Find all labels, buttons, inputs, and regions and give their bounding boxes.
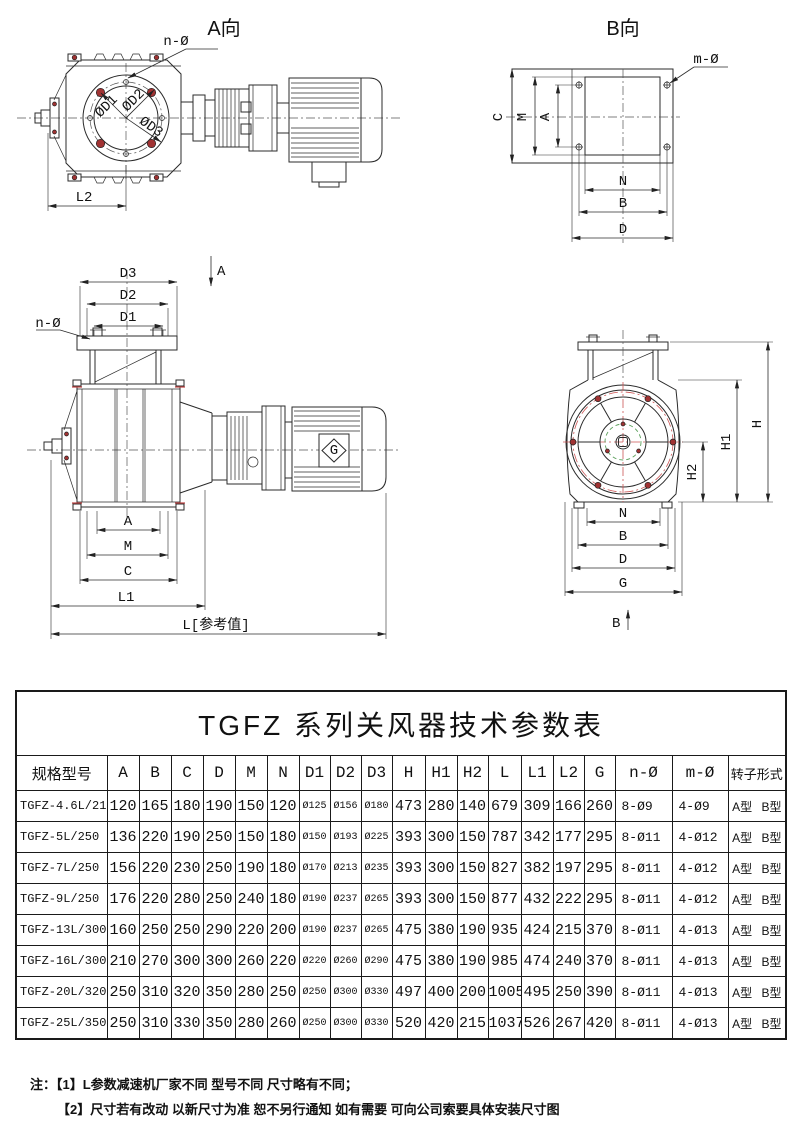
- spec-value-cell: 424: [521, 915, 553, 946]
- spec-value-cell: 150: [457, 853, 488, 884]
- spec-value-cell: 220: [235, 915, 267, 946]
- spec-value-cell: 495: [521, 977, 553, 1008]
- spec-value-cell: 4-Ø13: [672, 977, 728, 1008]
- dim-label-m: M: [515, 113, 531, 121]
- column-header: H1: [425, 756, 457, 791]
- spec-value-cell: 8-Ø11: [615, 977, 672, 1008]
- spec-model-cell: TGFZ-16L/300: [16, 946, 107, 977]
- table-row: TGFZ-7L/250156220230250190180Ø170Ø213Ø23…: [16, 853, 786, 884]
- spec-value-cell: 260: [584, 791, 615, 822]
- spec-value-cell: 382: [521, 853, 553, 884]
- spec-value-cell: 222: [553, 884, 584, 915]
- column-header: L2: [553, 756, 584, 791]
- spec-table: TGFZ 系列关风器技术参数表 规格型号ABCDMND1D2D3HH1H2LL1…: [15, 690, 787, 1040]
- dim-label-c: C: [491, 113, 507, 121]
- view-b-drawing: B向 m-Ø C M A N B D: [491, 17, 728, 243]
- table-header-row: 规格型号ABCDMND1D2D3HH1H2LL1L2Gn-Øm-Ø转子形式: [16, 756, 786, 791]
- spec-value-cell: 300: [425, 822, 457, 853]
- spec-value-cell: 250: [203, 853, 235, 884]
- spec-value-cell: 166: [553, 791, 584, 822]
- spec-value-cell: Ø237: [330, 884, 361, 915]
- motor: G: [292, 407, 386, 491]
- column-header: D2: [330, 756, 361, 791]
- spec-value-cell: 679: [488, 791, 521, 822]
- spec-value-cell: 8-Ø11: [615, 946, 672, 977]
- spec-value-cell: 140: [457, 791, 488, 822]
- view-b-title: B向: [606, 17, 639, 40]
- spec-value-cell: 160: [107, 915, 139, 946]
- spec-value-cell: 250: [107, 977, 139, 1008]
- spec-value-cell: 420: [584, 1008, 615, 1040]
- spec-model-cell: TGFZ-25L/350: [16, 1008, 107, 1040]
- spec-value-cell: 432: [521, 884, 553, 915]
- spec-value-cell: 200: [267, 915, 299, 946]
- spec-value-cell: 4-Ø12: [672, 822, 728, 853]
- spec-value-cell: Ø330: [361, 977, 392, 1008]
- drawing-view-a: ØD1 ØD2 ØD3: [10, 5, 460, 250]
- spec-value-cell: 150: [457, 884, 488, 915]
- flange-bolts: [90, 328, 166, 336]
- spec-value-cell: A型 B型: [728, 946, 786, 977]
- spec-value-cell: 4-Ø9: [672, 791, 728, 822]
- spec-value-cell: 260: [235, 946, 267, 977]
- notes-block: 注：【1】L参数减速机厂家不同 型号不同 尺寸略有不同； 【2】尺寸若有改动 以…: [30, 1072, 560, 1123]
- spec-value-cell: 4-Ø12: [672, 884, 728, 915]
- dim-label-n: N: [619, 506, 627, 522]
- note-prefix: 注：: [30, 1077, 56, 1092]
- column-header: G: [584, 756, 615, 791]
- spec-value-cell: 526: [521, 1008, 553, 1040]
- dim-label-n: N: [619, 174, 627, 190]
- spec-value-cell: 985: [488, 946, 521, 977]
- dim-label-l-ref: L[参考值]: [182, 616, 249, 634]
- spec-value-cell: Ø250: [299, 1008, 330, 1040]
- section-marker-b: B: [612, 616, 620, 632]
- spec-value-cell: Ø170: [299, 853, 330, 884]
- table-title: TGFZ 系列关风器技术参数表: [16, 691, 786, 756]
- spec-value-cell: 177: [553, 822, 584, 853]
- table-row: TGFZ-25L/350250310330350280260Ø250Ø300Ø3…: [16, 1008, 786, 1040]
- dim-label-h2: H2: [685, 464, 701, 481]
- table-row: TGFZ-13L/300160250250290220200Ø190Ø237Ø2…: [16, 915, 786, 946]
- spec-value-cell: 280: [235, 977, 267, 1008]
- spec-value-cell: 393: [392, 822, 425, 853]
- dim-label-b: B: [619, 529, 627, 545]
- spec-model-cell: TGFZ-4.6L/210: [16, 791, 107, 822]
- spec-value-cell: 787: [488, 822, 521, 853]
- spec-value-cell: 230: [171, 853, 203, 884]
- spec-value-cell: 935: [488, 915, 521, 946]
- spec-model-cell: TGFZ-13L/300: [16, 915, 107, 946]
- table-row: TGFZ-5L/250136220190250150180Ø150Ø193Ø22…: [16, 822, 786, 853]
- note-line-1: 注：【1】L参数减速机厂家不同 型号不同 尺寸略有不同；: [30, 1072, 560, 1097]
- spec-value-cell: 300: [171, 946, 203, 977]
- dim-label-h1: H1: [719, 434, 735, 451]
- spec-value-cell: 309: [521, 791, 553, 822]
- spec-value-cell: 8-Ø11: [615, 1008, 672, 1040]
- spec-value-cell: A型 B型: [728, 884, 786, 915]
- spec-value-cell: 4-Ø12: [672, 853, 728, 884]
- spec-value-cell: Ø150: [299, 822, 330, 853]
- spec-value-cell: 220: [139, 822, 171, 853]
- spec-value-cell: 827: [488, 853, 521, 884]
- spec-value-cell: 295: [584, 884, 615, 915]
- spec-value-cell: 4-Ø13: [672, 1008, 728, 1040]
- spec-value-cell: 250: [171, 915, 203, 946]
- view-a-drawing: ØD1 ØD2 ØD3: [17, 17, 402, 211]
- spec-value-cell: 240: [235, 884, 267, 915]
- spec-value-cell: 190: [235, 853, 267, 884]
- spec-value-cell: 250: [203, 822, 235, 853]
- spec-value-cell: 190: [457, 946, 488, 977]
- spec-value-cell: 260: [267, 1008, 299, 1040]
- spec-value-cell: 1005: [488, 977, 521, 1008]
- spec-value-cell: 176: [107, 884, 139, 915]
- dim-label-a: A: [538, 112, 554, 121]
- spec-value-cell: Ø300: [330, 1008, 361, 1040]
- dim-label-b: B: [619, 196, 627, 212]
- spec-value-cell: 250: [139, 915, 171, 946]
- spec-value-cell: 150: [457, 822, 488, 853]
- spec-value-cell: 400: [425, 977, 457, 1008]
- spec-value-cell: 473: [392, 791, 425, 822]
- spec-value-cell: 300: [203, 946, 235, 977]
- spec-value-cell: 280: [171, 884, 203, 915]
- dim-label-g: G: [619, 576, 627, 592]
- spec-value-cell: Ø300: [330, 977, 361, 1008]
- callout-m-phi: m-Ø: [693, 52, 718, 68]
- gear-reducer: [180, 402, 292, 493]
- spec-value-cell: 390: [584, 977, 615, 1008]
- note-line-2: 【2】尺寸若有改动 以新尺寸为准 恕不另行通知 如有需要 可向公司索要具体安装尺…: [30, 1097, 560, 1122]
- spec-value-cell: 280: [235, 1008, 267, 1040]
- spec-value-cell: 497: [392, 977, 425, 1008]
- spec-value-cell: 250: [203, 884, 235, 915]
- spec-value-cell: A型 B型: [728, 977, 786, 1008]
- spec-value-cell: 330: [171, 1008, 203, 1040]
- view-a-title: A向: [207, 17, 240, 40]
- drawing-view-front: A D3 D2 D1 n-Ø: [14, 250, 434, 655]
- spec-value-cell: 150: [235, 822, 267, 853]
- spec-value-cell: Ø225: [361, 822, 392, 853]
- spec-value-cell: 156: [107, 853, 139, 884]
- spec-value-cell: 300: [425, 884, 457, 915]
- spec-value-cell: 300: [425, 853, 457, 884]
- spec-value-cell: 250: [553, 977, 584, 1008]
- spec-value-cell: Ø265: [361, 884, 392, 915]
- spec-value-cell: 270: [139, 946, 171, 977]
- spec-value-cell: Ø125: [299, 791, 330, 822]
- spec-value-cell: 295: [584, 822, 615, 853]
- shaft-left: [44, 391, 77, 500]
- dim-label-l2: L2: [76, 190, 93, 206]
- spec-value-cell: 877: [488, 884, 521, 915]
- spec-value-cell: Ø237: [330, 915, 361, 946]
- spec-value-cell: Ø235: [361, 853, 392, 884]
- spec-value-cell: 200: [457, 977, 488, 1008]
- spec-value-cell: 4-Ø13: [672, 946, 728, 977]
- table-row: TGFZ-9L/250176220280250240180Ø190Ø237Ø26…: [16, 884, 786, 915]
- motor: [289, 78, 382, 187]
- dim-label-d2: D2: [120, 288, 137, 304]
- spec-value-cell: 267: [553, 1008, 584, 1040]
- spec-value-cell: Ø260: [330, 946, 361, 977]
- table-row: TGFZ-4.6L/210120165180190150120Ø125Ø156Ø…: [16, 791, 786, 822]
- dim-label-d1: ØD1: [92, 92, 121, 121]
- dim-label-c: C: [124, 564, 132, 580]
- spec-value-cell: 475: [392, 915, 425, 946]
- spec-value-cell: 380: [425, 946, 457, 977]
- spec-value-cell: 240: [553, 946, 584, 977]
- spec-value-cell: 310: [139, 1008, 171, 1040]
- spec-value-cell: 190: [203, 791, 235, 822]
- spec-model-cell: TGFZ-5L/250: [16, 822, 107, 853]
- spec-value-cell: 393: [392, 884, 425, 915]
- column-header: L: [488, 756, 521, 791]
- spec-value-cell: 215: [553, 915, 584, 946]
- spec-value-cell: 210: [107, 946, 139, 977]
- table-row: TGFZ-16L/300210270300300260220Ø220Ø260Ø2…: [16, 946, 786, 977]
- section-marker-a: A: [217, 264, 226, 280]
- callout-n-phi: n-Ø: [163, 34, 188, 50]
- spec-value-cell: Ø180: [361, 791, 392, 822]
- spec-value-cell: Ø156: [330, 791, 361, 822]
- spec-value-cell: 136: [107, 822, 139, 853]
- spec-value-cell: Ø265: [361, 915, 392, 946]
- spec-value-cell: 180: [267, 822, 299, 853]
- column-header: m-Ø: [672, 756, 728, 791]
- column-header: H: [392, 756, 425, 791]
- spec-value-cell: 180: [267, 884, 299, 915]
- spec-value-cell: Ø190: [299, 884, 330, 915]
- spec-value-cell: 250: [267, 977, 299, 1008]
- spec-value-cell: 215: [457, 1008, 488, 1040]
- column-header: M: [235, 756, 267, 791]
- spec-value-cell: Ø190: [299, 915, 330, 946]
- spec-value-cell: 197: [553, 853, 584, 884]
- column-header: A: [107, 756, 139, 791]
- spec-model-cell: TGFZ-20L/320: [16, 977, 107, 1008]
- spec-value-cell: 165: [139, 791, 171, 822]
- spec-value-cell: 8-Ø9: [615, 791, 672, 822]
- spec-value-cell: 310: [139, 977, 171, 1008]
- dim-label-d2: ØD2: [119, 86, 148, 115]
- column-header: L1: [521, 756, 553, 791]
- drawing-view-b: B向 m-Ø C M A N B D: [470, 5, 800, 255]
- spec-table-body: TGFZ-4.6L/210120165180190150120Ø125Ø156Ø…: [16, 791, 786, 1040]
- spec-value-cell: 420: [425, 1008, 457, 1040]
- spec-value-cell: 220: [139, 853, 171, 884]
- dim-label-d3: D3: [120, 266, 137, 282]
- spec-value-cell: 280: [425, 791, 457, 822]
- spec-value-cell: 342: [521, 822, 553, 853]
- spec-value-cell: 475: [392, 946, 425, 977]
- spec-value-cell: 180: [267, 853, 299, 884]
- spec-value-cell: 350: [203, 1008, 235, 1040]
- spec-value-cell: 120: [267, 791, 299, 822]
- spec-value-cell: 220: [139, 884, 171, 915]
- view-side-drawing: H H1 H2 N B D G B: [563, 330, 773, 632]
- spec-value-cell: 320: [171, 977, 203, 1008]
- view-front-drawing: A D3 D2 D1 n-Ø: [27, 256, 398, 639]
- column-header: D1: [299, 756, 330, 791]
- spec-value-cell: A型 B型: [728, 822, 786, 853]
- spec-value-cell: 120: [107, 791, 139, 822]
- dim-label-d1: D1: [120, 310, 137, 326]
- dim-label-d: D: [619, 222, 627, 238]
- spec-value-cell: Ø250: [299, 977, 330, 1008]
- dim-label-d: D: [619, 552, 627, 568]
- column-header: n-Ø: [615, 756, 672, 791]
- spec-value-cell: 150: [235, 791, 267, 822]
- dim-label-a: A: [124, 514, 133, 530]
- column-header: H2: [457, 756, 488, 791]
- column-header: N: [267, 756, 299, 791]
- spec-value-cell: 8-Ø11: [615, 822, 672, 853]
- spec-value-cell: 250: [107, 1008, 139, 1040]
- dim-label-m: M: [124, 539, 132, 555]
- spec-value-cell: Ø330: [361, 1008, 392, 1040]
- spec-value-cell: 370: [584, 915, 615, 946]
- column-header: B: [139, 756, 171, 791]
- spec-value-cell: 295: [584, 853, 615, 884]
- spec-value-cell: 290: [203, 915, 235, 946]
- spec-value-cell: 8-Ø11: [615, 884, 672, 915]
- spec-value-cell: 380: [425, 915, 457, 946]
- column-header: C: [171, 756, 203, 791]
- body-corner-bolts: [72, 380, 185, 510]
- spec-value-cell: 220: [267, 946, 299, 977]
- column-header: 规格型号: [16, 756, 107, 791]
- spec-value-cell: 190: [171, 822, 203, 853]
- table-row: TGFZ-20L/320250310320350280250Ø250Ø300Ø3…: [16, 977, 786, 1008]
- spec-value-cell: 350: [203, 977, 235, 1008]
- spec-value-cell: 520: [392, 1008, 425, 1040]
- column-header: 转子形式: [728, 756, 786, 791]
- spec-value-cell: 190: [457, 915, 488, 946]
- spec-model-cell: TGFZ-7L/250: [16, 853, 107, 884]
- table-title-row: TGFZ 系列关风器技术参数表: [16, 691, 786, 756]
- svg-text:G: G: [330, 443, 338, 459]
- drawing-view-side: H H1 H2 N B D G B: [530, 300, 800, 650]
- spec-value-cell: 1037: [488, 1008, 521, 1040]
- spec-value-cell: 8-Ø11: [615, 853, 672, 884]
- spec-value-cell: 474: [521, 946, 553, 977]
- spec-value-cell: A型 B型: [728, 915, 786, 946]
- dim-label-l1: L1: [118, 590, 135, 606]
- spec-value-cell: Ø193: [330, 822, 361, 853]
- column-header: D3: [361, 756, 392, 791]
- spec-value-cell: A型 B型: [728, 1008, 786, 1040]
- column-header: D: [203, 756, 235, 791]
- spec-value-cell: 180: [171, 791, 203, 822]
- spec-value-cell: Ø220: [299, 946, 330, 977]
- spec-value-cell: Ø290: [361, 946, 392, 977]
- spec-model-cell: TGFZ-9L/250: [16, 884, 107, 915]
- dim-label-h: H: [750, 420, 766, 428]
- spec-value-cell: 393: [392, 853, 425, 884]
- spec-value-cell: A型 B型: [728, 853, 786, 884]
- spec-value-cell: 8-Ø11: [615, 915, 672, 946]
- spec-value-cell: Ø213: [330, 853, 361, 884]
- spec-value-cell: 4-Ø13: [672, 915, 728, 946]
- spec-value-cell: A型 B型: [728, 791, 786, 822]
- spec-value-cell: 370: [584, 946, 615, 977]
